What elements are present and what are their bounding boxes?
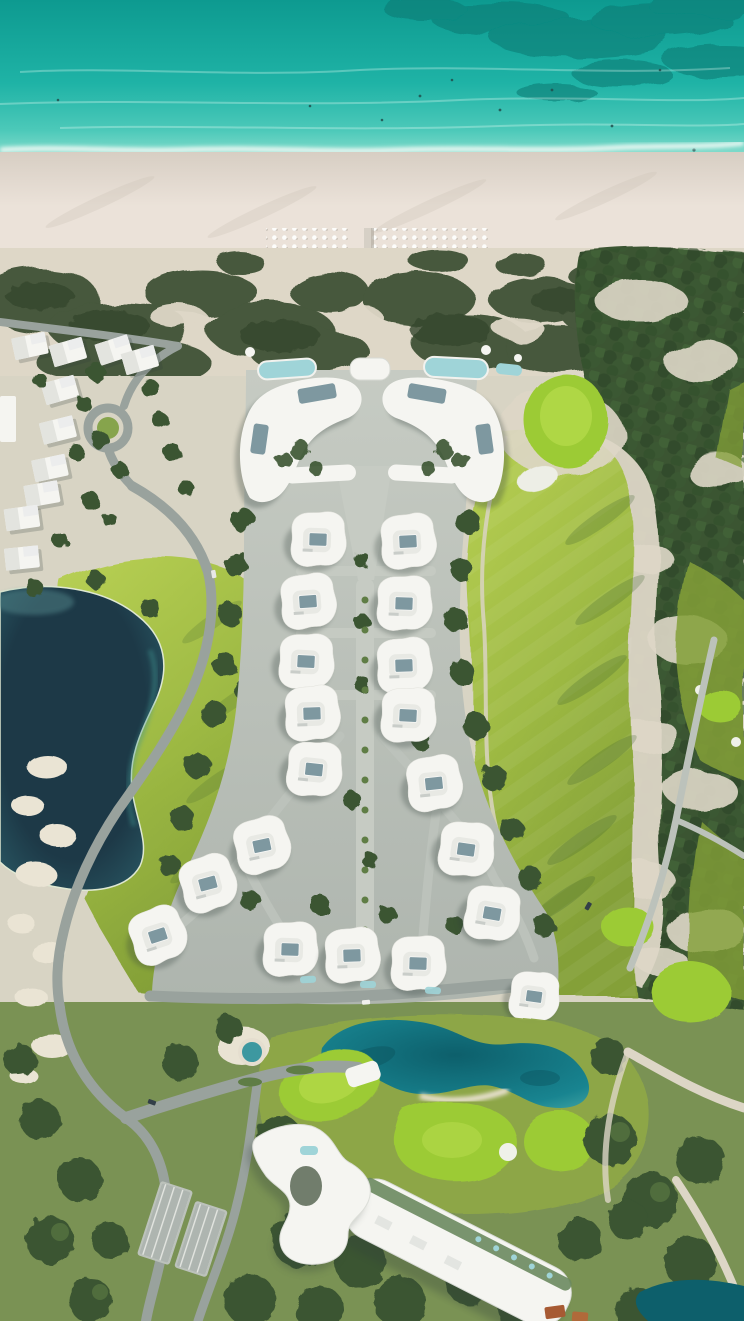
- wing-pool: [300, 1146, 318, 1155]
- putting-green: [650, 962, 730, 1022]
- pavilion: [245, 347, 255, 357]
- sand-bunker: [499, 1143, 517, 1161]
- hotel-courtyard: [290, 1166, 322, 1206]
- aerial-render: [0, 0, 744, 1321]
- pavilion: [481, 345, 491, 355]
- umbrella-cluster-right: [366, 228, 488, 250]
- umbrella-cluster-left: [266, 228, 352, 248]
- beach-club-pool-left: [257, 358, 316, 380]
- pavilion: [514, 354, 522, 362]
- central-pavilion: [350, 358, 390, 380]
- apartment-slab: [0, 396, 16, 442]
- beach-club-pool-right: [424, 356, 489, 379]
- round-pond: [240, 1040, 264, 1064]
- road-median: [238, 1078, 262, 1087]
- road-median: [286, 1066, 314, 1075]
